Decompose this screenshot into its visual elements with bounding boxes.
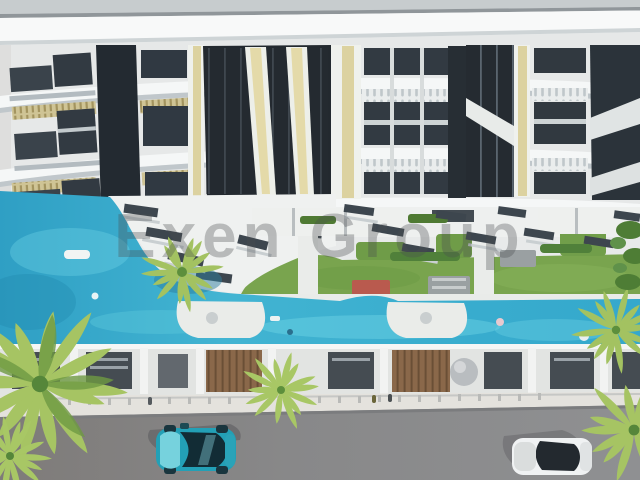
svg-text:Exen Group: Exen Group <box>114 202 525 271</box>
